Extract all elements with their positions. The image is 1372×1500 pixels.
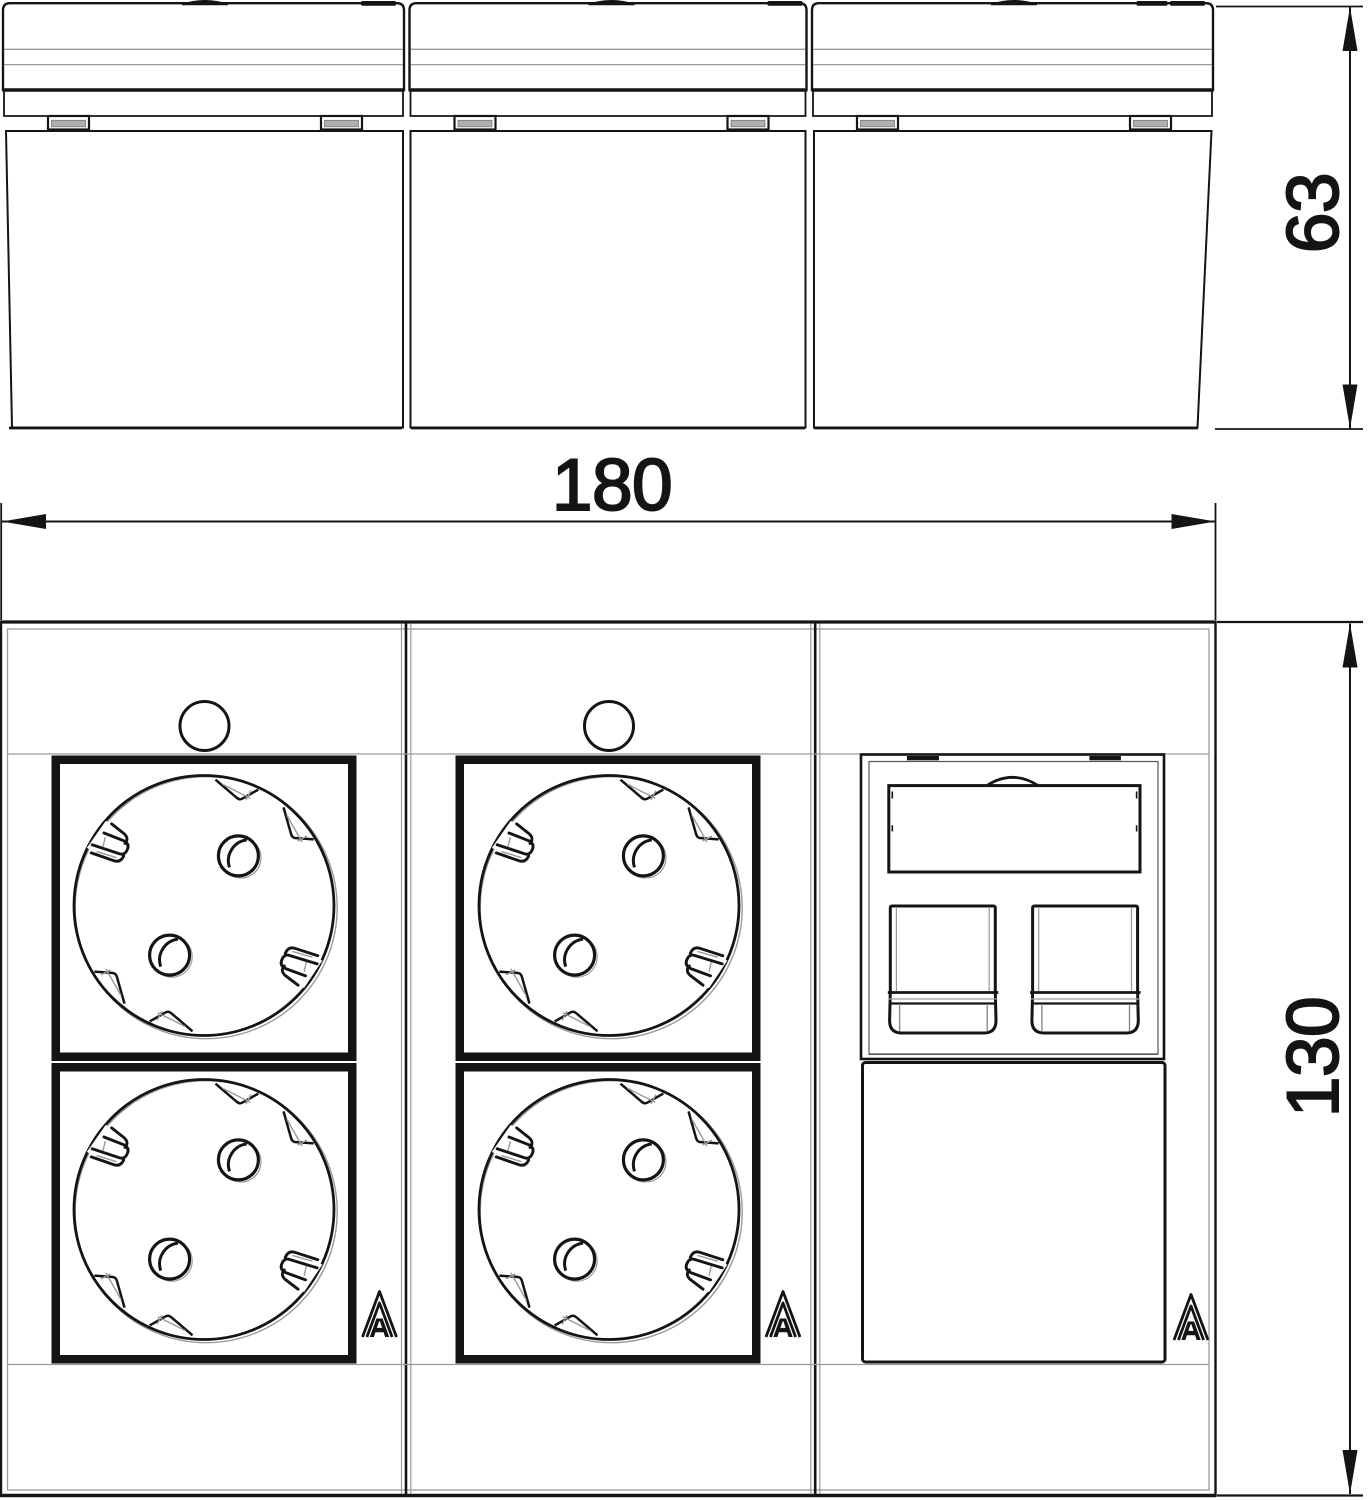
svg-text:130: 130 — [1273, 997, 1354, 1117]
svg-text:180: 180 — [552, 445, 672, 526]
svg-text:63: 63 — [1273, 173, 1354, 253]
